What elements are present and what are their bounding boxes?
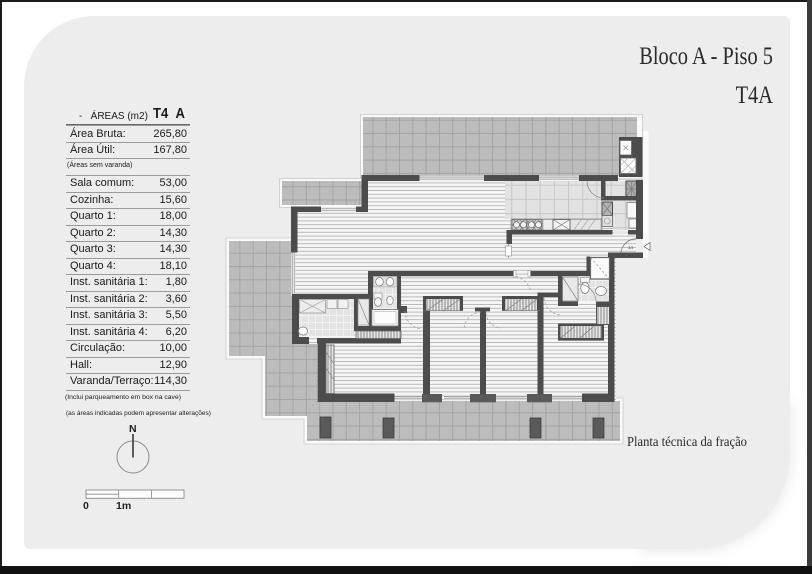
svg-text:N: N	[129, 423, 137, 435]
svg-text:0: 0	[83, 500, 89, 512]
svg-text:14: 14	[628, 245, 634, 250]
svg-text:1m: 1m	[116, 500, 131, 512]
